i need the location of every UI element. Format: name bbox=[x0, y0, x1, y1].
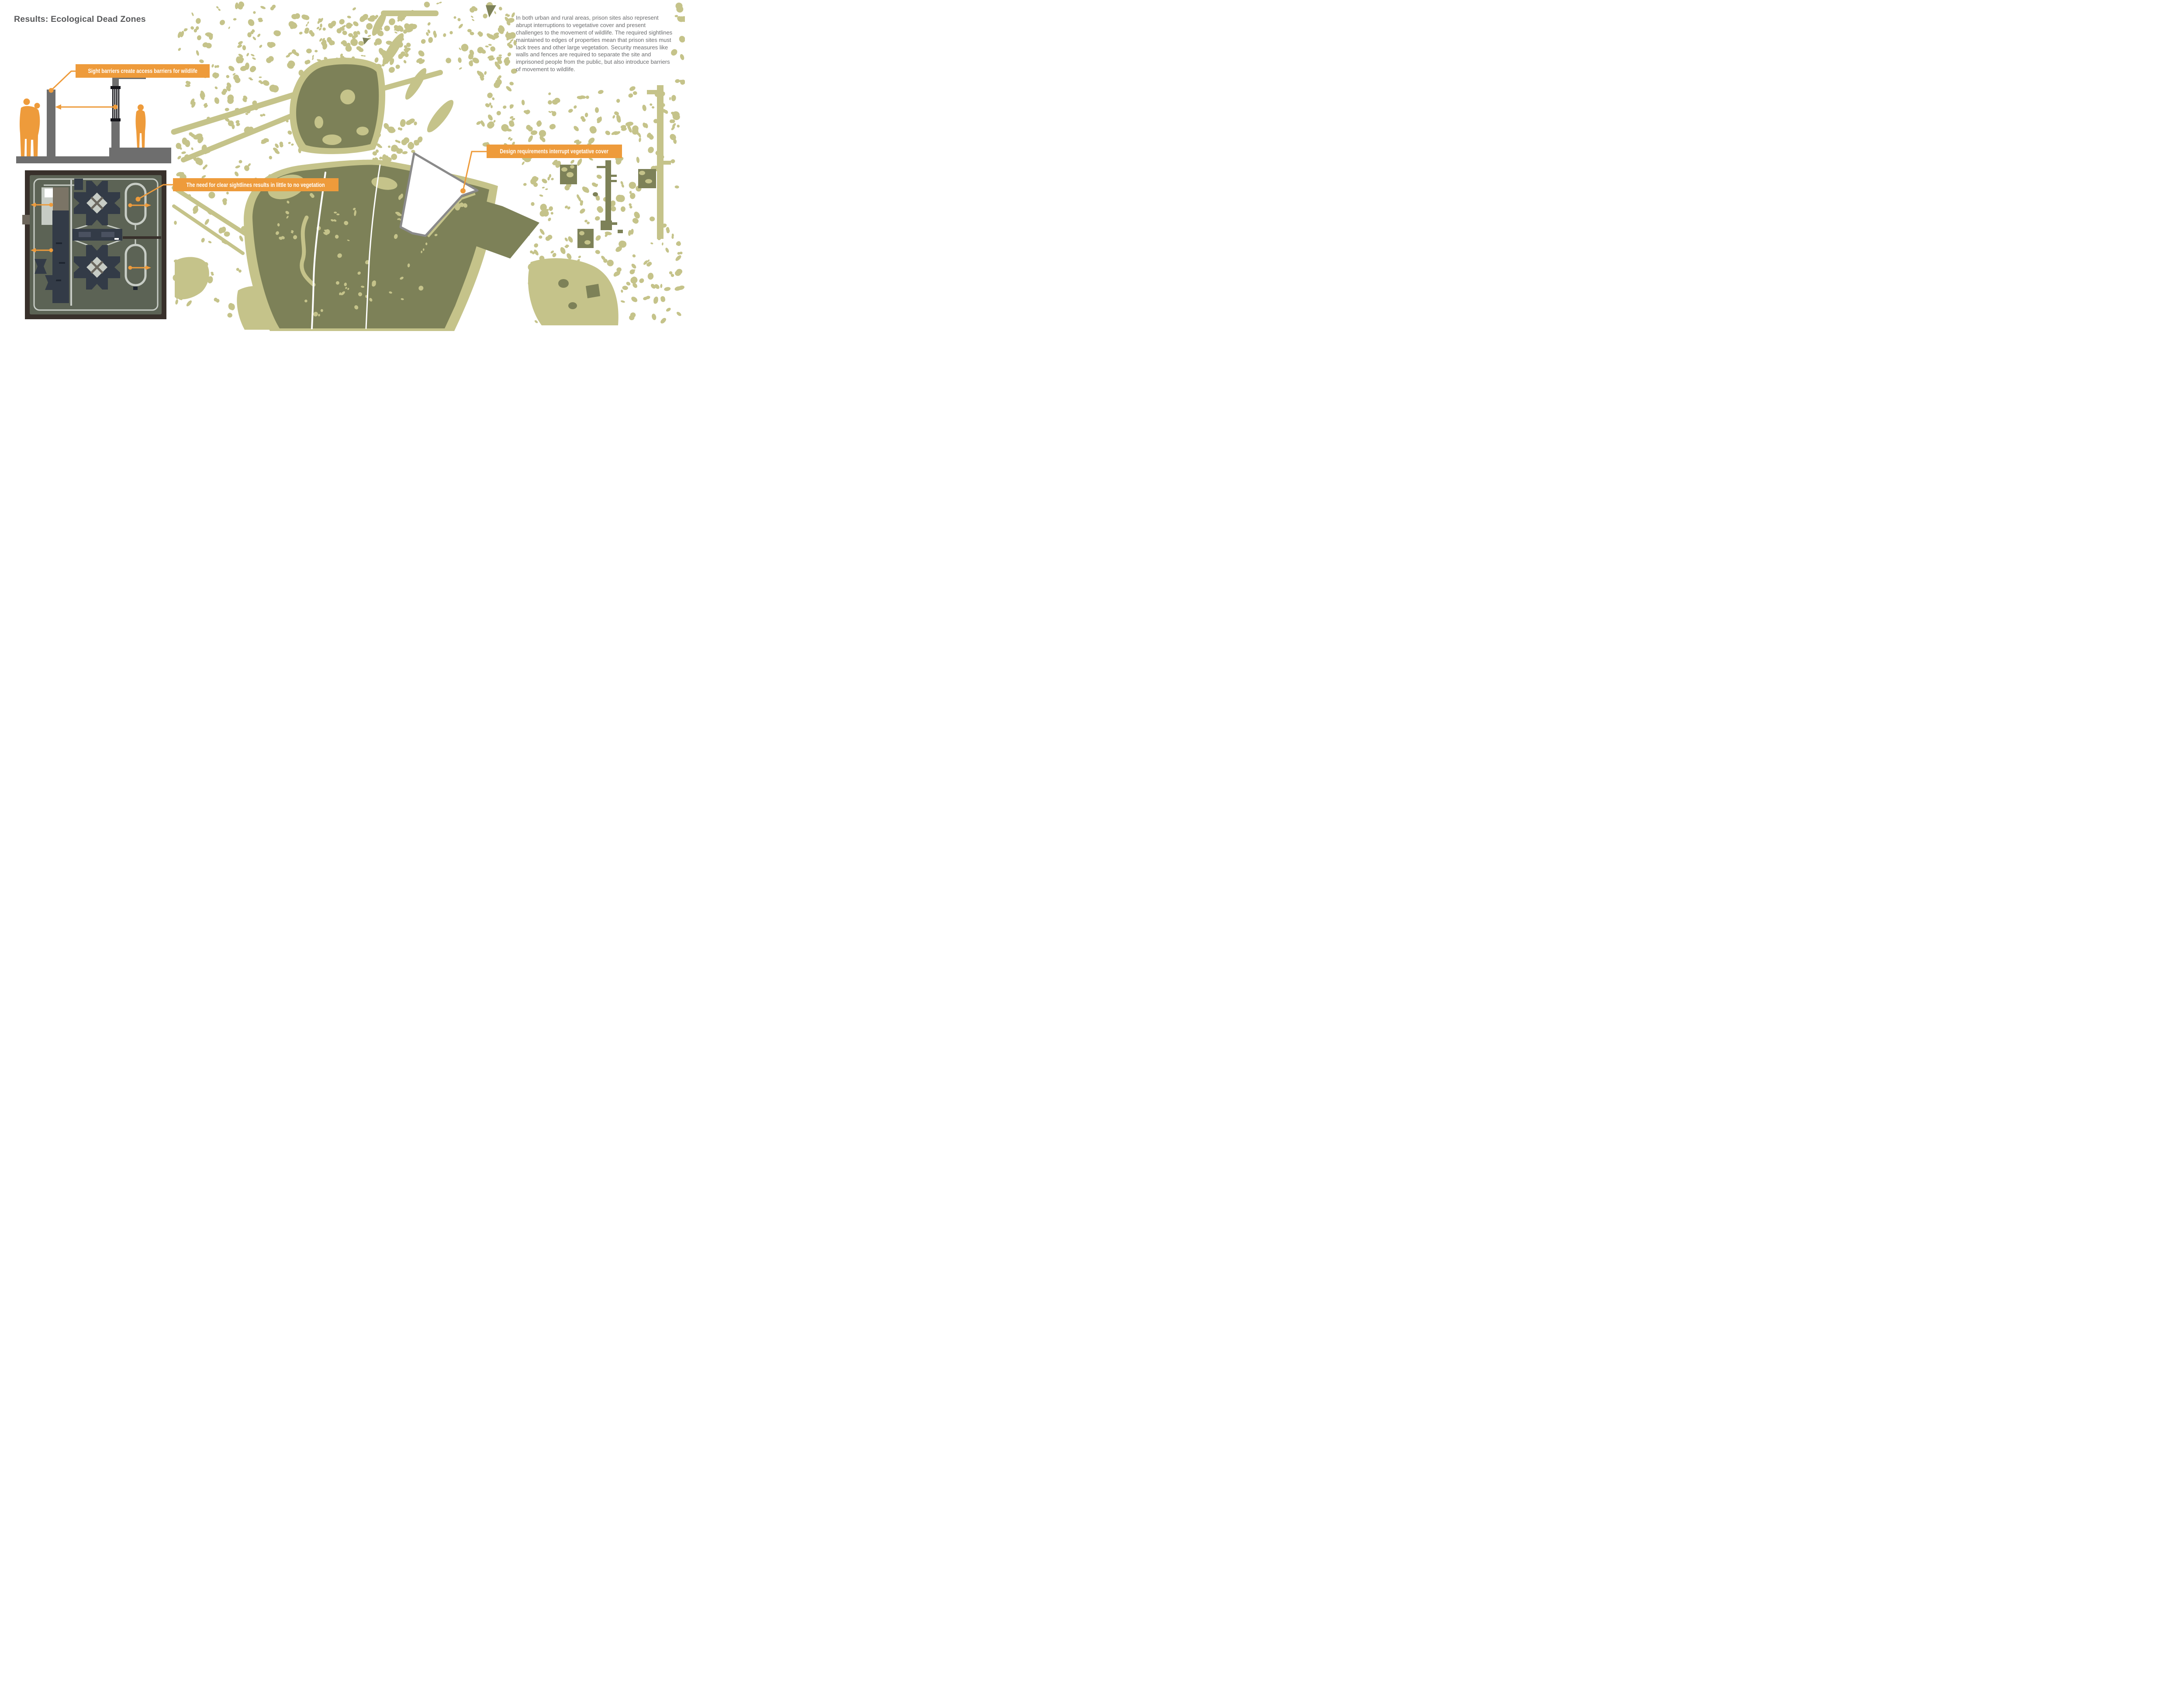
prison-site-plan bbox=[22, 170, 173, 319]
callout-design-requirements: Design requirements interrupt vegetative… bbox=[487, 145, 622, 158]
leader-line-sight-barriers bbox=[49, 71, 76, 93]
sight-wall bbox=[47, 90, 55, 156]
leader-dot bbox=[113, 105, 118, 110]
callout-label: Design requirements interrupt vegetative… bbox=[500, 148, 609, 155]
leader-line-design-requirements bbox=[460, 152, 487, 193]
page-title: Results: Ecological Dead Zones bbox=[14, 14, 146, 24]
leader-dot bbox=[136, 197, 141, 202]
infographic-canvas: Results: Ecological Dead Zones In both u… bbox=[0, 0, 685, 334]
leader-dot bbox=[460, 188, 466, 193]
callout-label: Sight barriers create access barriers fo… bbox=[88, 68, 197, 74]
arrow-left-icon bbox=[55, 104, 61, 110]
callout-sight-barriers: Sight barriers create access barriers fo… bbox=[76, 64, 210, 78]
callout-label: The need for clear sightlines results in… bbox=[187, 182, 325, 188]
description-text: In both urban and rural areas, prison si… bbox=[516, 14, 673, 73]
fence-pedestal bbox=[111, 121, 120, 148]
span-arrow bbox=[55, 104, 118, 110]
ground bbox=[16, 156, 171, 163]
person-silhouette bbox=[136, 104, 146, 148]
callout-clear-sightlines: The need for clear sightlines results in… bbox=[173, 178, 339, 191]
leader-dot bbox=[49, 88, 54, 93]
barrier-section-diagram bbox=[16, 71, 171, 163]
raised-platform bbox=[109, 148, 171, 156]
pedestrians-silhouette bbox=[20, 99, 40, 157]
